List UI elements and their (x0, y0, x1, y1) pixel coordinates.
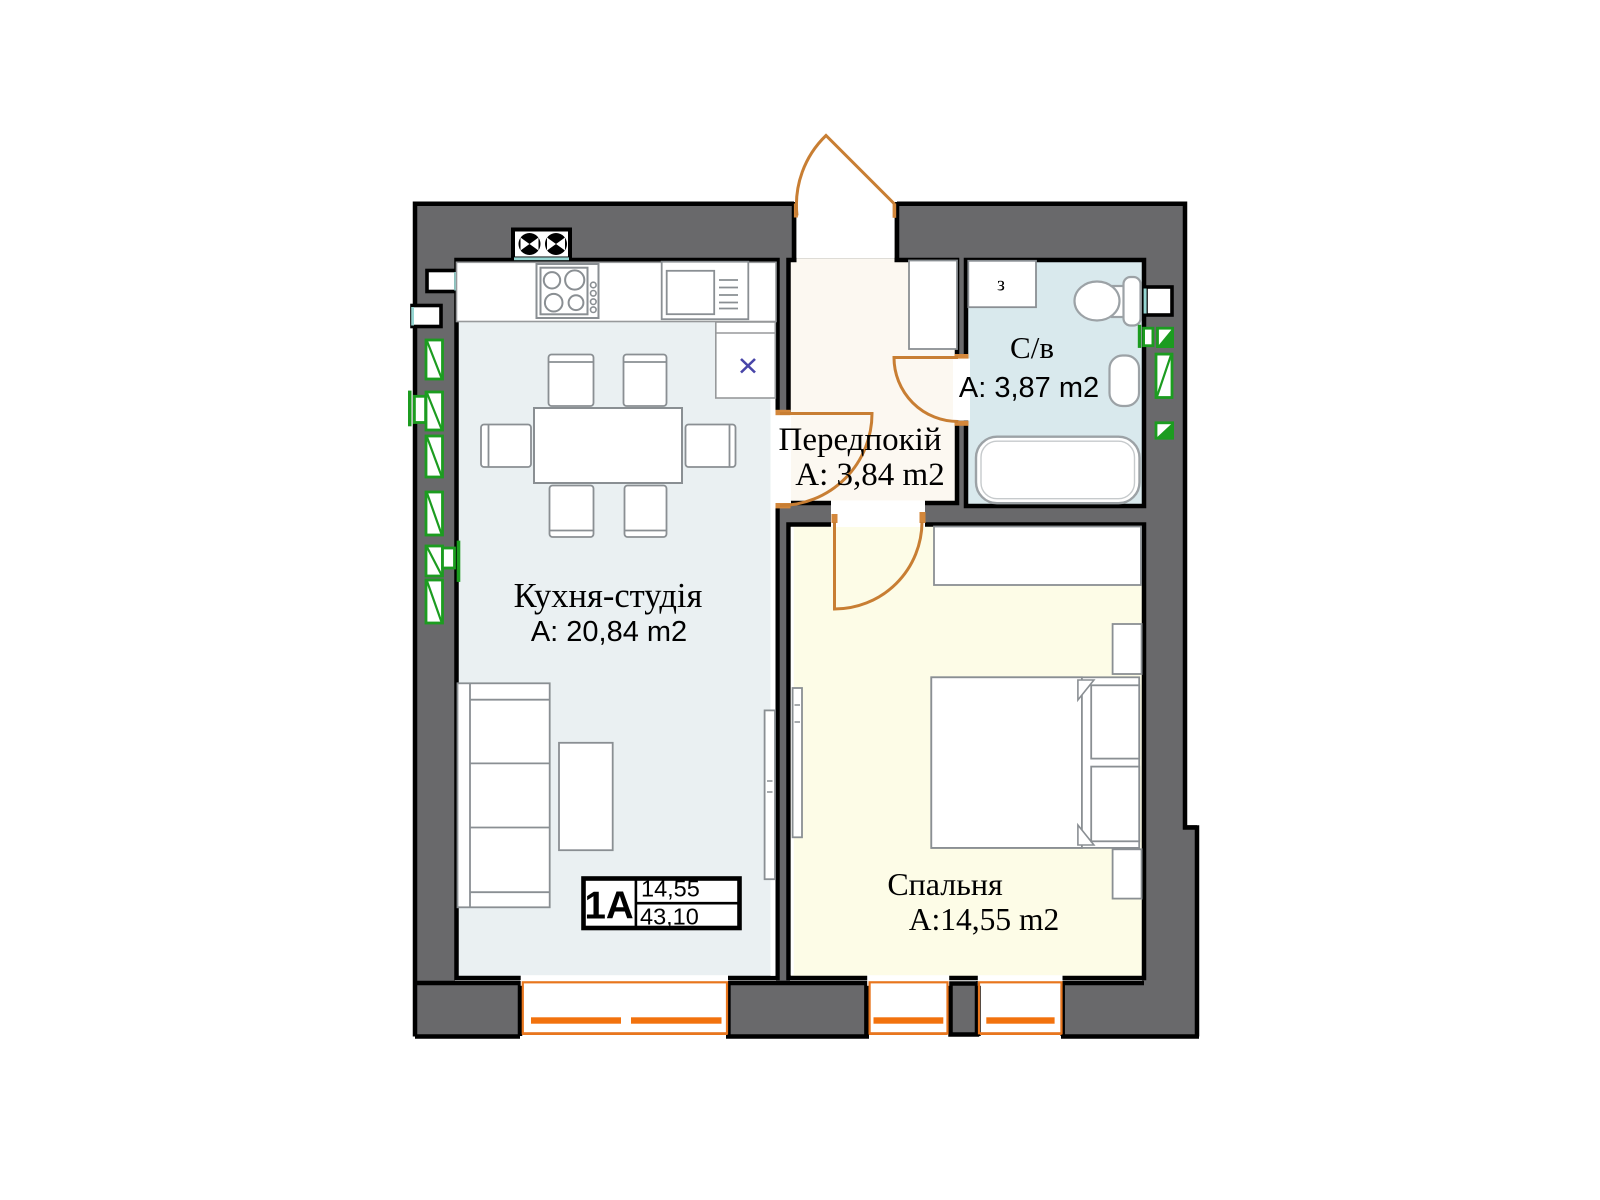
svg-text:А: 3,87 m2: А: 3,87 m2 (959, 372, 1099, 404)
svg-text:43,10: 43,10 (640, 904, 699, 930)
svg-text:з: з (997, 274, 1005, 296)
svg-text:1A: 1A (585, 885, 634, 928)
svg-text:А:14,55 m2: А:14,55 m2 (909, 902, 1060, 937)
svg-text:Кухня-студія: Кухня-студія (514, 577, 703, 615)
svg-text:С/в: С/в (1010, 330, 1054, 365)
svg-text:Спальня: Спальня (887, 866, 1003, 902)
svg-text:14,55: 14,55 (641, 876, 700, 902)
svg-text:А: 3,84 m2: А: 3,84 m2 (795, 457, 944, 493)
svg-text:Передпокій: Передпокій (778, 422, 941, 458)
svg-text:А: 20,84 m2: А: 20,84 m2 (531, 616, 687, 648)
